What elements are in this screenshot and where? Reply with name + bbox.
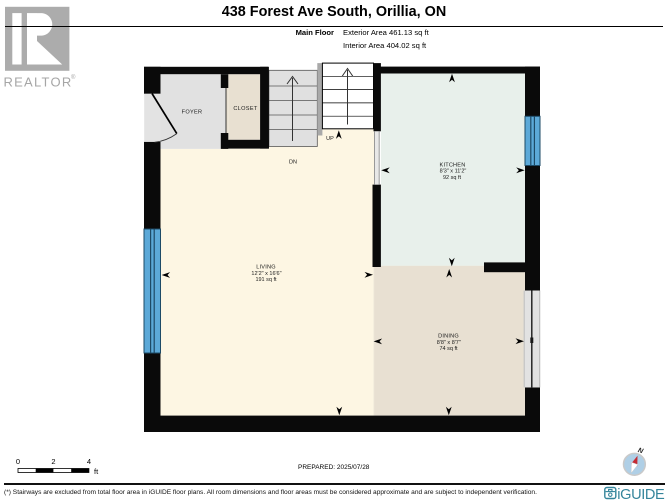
svg-text:0: 0: [16, 457, 20, 466]
svg-text:191 sq ft: 191 sq ft: [255, 277, 277, 283]
svg-text:92 sq ft: 92 sq ft: [443, 175, 462, 181]
svg-text:74 sq ft: 74 sq ft: [439, 346, 458, 352]
svg-text:UP: UP: [326, 136, 334, 142]
svg-text:KITCHEN: KITCHEN: [440, 162, 466, 168]
svg-text:DN: DN: [289, 160, 297, 166]
svg-text:CLOSET: CLOSET: [233, 106, 257, 112]
svg-text:DINING: DINING: [438, 334, 459, 340]
svg-text:4: 4: [87, 457, 91, 466]
svg-text:FOYER: FOYER: [182, 110, 203, 116]
svg-text:ft: ft: [94, 467, 99, 476]
svg-text:8'3" x 11'2": 8'3" x 11'2": [440, 169, 467, 175]
svg-text:2: 2: [51, 457, 55, 466]
svg-text:iGUIDE: iGUIDE: [617, 487, 665, 500]
svg-text:12'2" x 16'6": 12'2" x 16'6": [251, 271, 281, 277]
svg-text:8'8" x 8'7": 8'8" x 8'7": [437, 340, 461, 346]
svg-text:LIVING: LIVING: [256, 264, 276, 270]
